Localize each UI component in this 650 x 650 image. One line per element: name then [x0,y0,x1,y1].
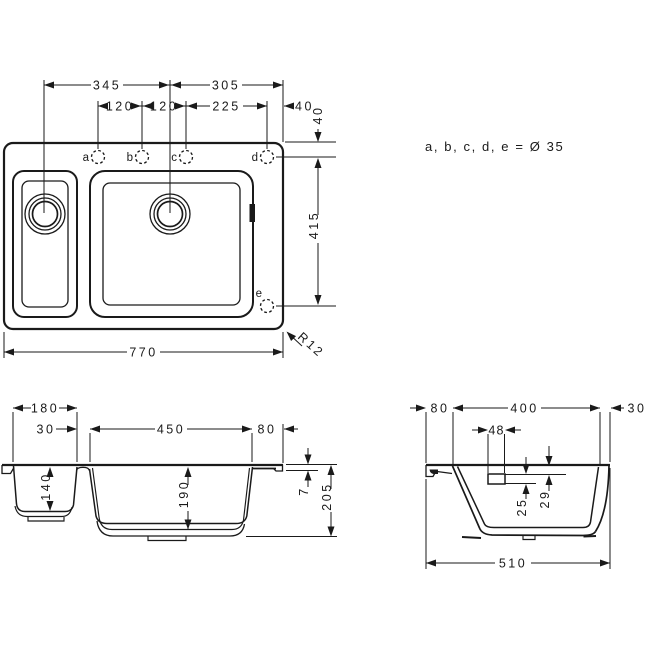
dim-40-vertical-label: 40 [311,106,325,125]
tap-hole-e-label: e [256,288,262,300]
dim-400-label: 400 [510,402,538,416]
dim-80-label: 80 [258,423,277,437]
dim-205-label: 205 [320,482,334,510]
tap-hole-c-label: c [171,152,177,164]
dim-140-label: 140 [39,472,53,500]
overflow-slot [250,204,256,222]
tap-hole-note: a, b, c, d, e = Ø 35 [425,139,564,154]
dim-415-label: 415 [307,211,321,239]
dim-305-label: 305 [212,79,240,93]
dim-80-side-label: 80 [431,402,450,416]
dim-345-label: 345 [93,79,121,93]
tap-hole-b-label: b [127,152,133,164]
dim-30-label: 30 [37,423,56,437]
tap-hole-a-label: a [83,152,90,164]
tap-hole-d-label: d [252,152,258,164]
dim-29-label: 29 [538,490,552,509]
sink-technical-drawing: a b c d e 345 305 [0,0,650,650]
dim-770-label: 770 [129,346,157,360]
dim-25-label: 25 [515,498,529,517]
drawing-background [0,0,650,650]
dim-225-label: 225 [212,100,240,114]
dim-120-right-label: 120 [150,100,178,114]
dim-48-label: 48 [488,424,504,438]
dim-450-label: 450 [157,423,185,437]
dim-190-label: 190 [177,480,191,508]
dim-30-side-label: 30 [628,402,647,416]
dim-120-left-label: 120 [106,100,134,114]
dim-510-label: 510 [499,557,527,571]
dim-7-label: 7 [297,486,311,495]
dim-180-label: 180 [31,402,59,416]
